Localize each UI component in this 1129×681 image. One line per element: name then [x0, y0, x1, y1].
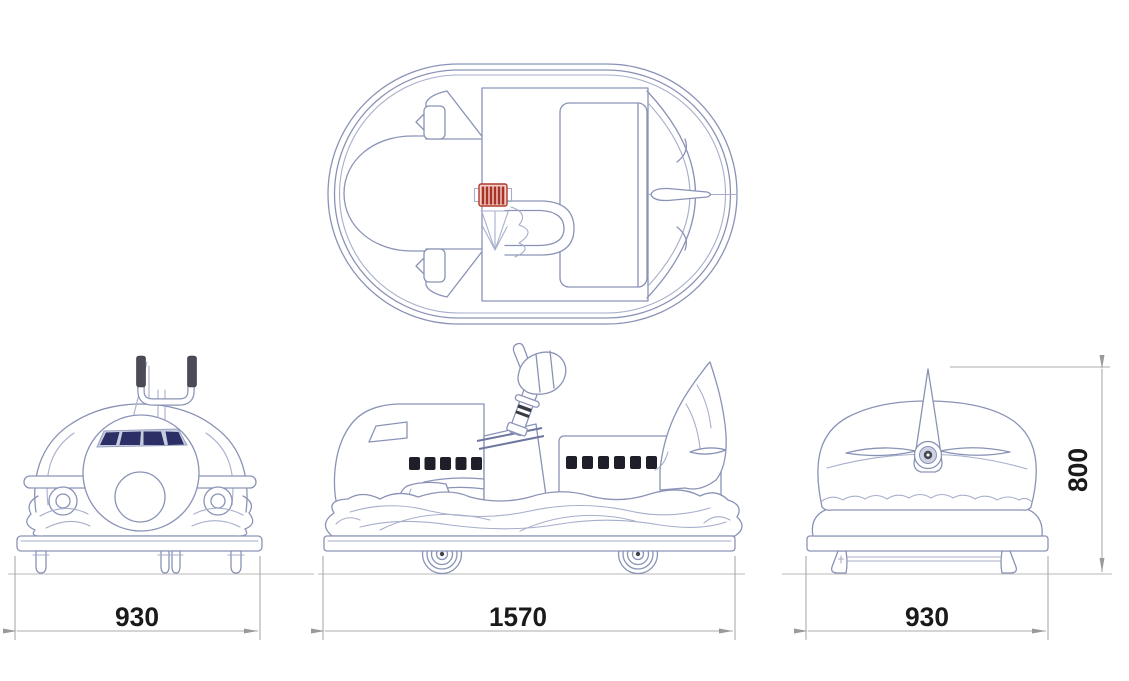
- technical-drawing-canvas: 930 1570 930 800: [0, 0, 1129, 681]
- cloud-cushion-rear: [812, 508, 1042, 536]
- base-platform-side: [324, 536, 735, 551]
- front-view: [8, 356, 314, 574]
- seat-top: [560, 103, 647, 287]
- drawing-sheet: 930 1570 930 800: [0, 0, 1129, 681]
- base-platform-rear: [807, 536, 1048, 551]
- handle-grips: [137, 356, 197, 387]
- front-cabin-windows: [409, 457, 482, 470]
- windshield: [97, 429, 187, 447]
- joystick-grip-top: [475, 184, 512, 206]
- base-platform-front: [17, 536, 262, 551]
- cloud-band-side: [325, 490, 742, 536]
- dim-text-front-width: 930: [115, 602, 159, 632]
- side-view: [318, 344, 745, 575]
- nose-cone-front: [115, 472, 165, 522]
- dimension-front-width: 930: [15, 556, 260, 640]
- feet-rear: [832, 551, 1017, 573]
- spinner-hub: [915, 442, 942, 469]
- dimension-side-length: 1570: [323, 556, 735, 640]
- handlebar: [137, 356, 197, 402]
- engine-right: [204, 487, 232, 515]
- dim-text-overall-height: 800: [1063, 448, 1093, 492]
- top-view: [328, 64, 737, 324]
- feet-front: [33, 551, 244, 573]
- tail-spinner-top: [651, 188, 711, 200]
- tail-fin-side: [660, 362, 726, 490]
- dim-text-side-length: 1570: [489, 602, 547, 632]
- dim-text-rear-width: 930: [905, 602, 949, 632]
